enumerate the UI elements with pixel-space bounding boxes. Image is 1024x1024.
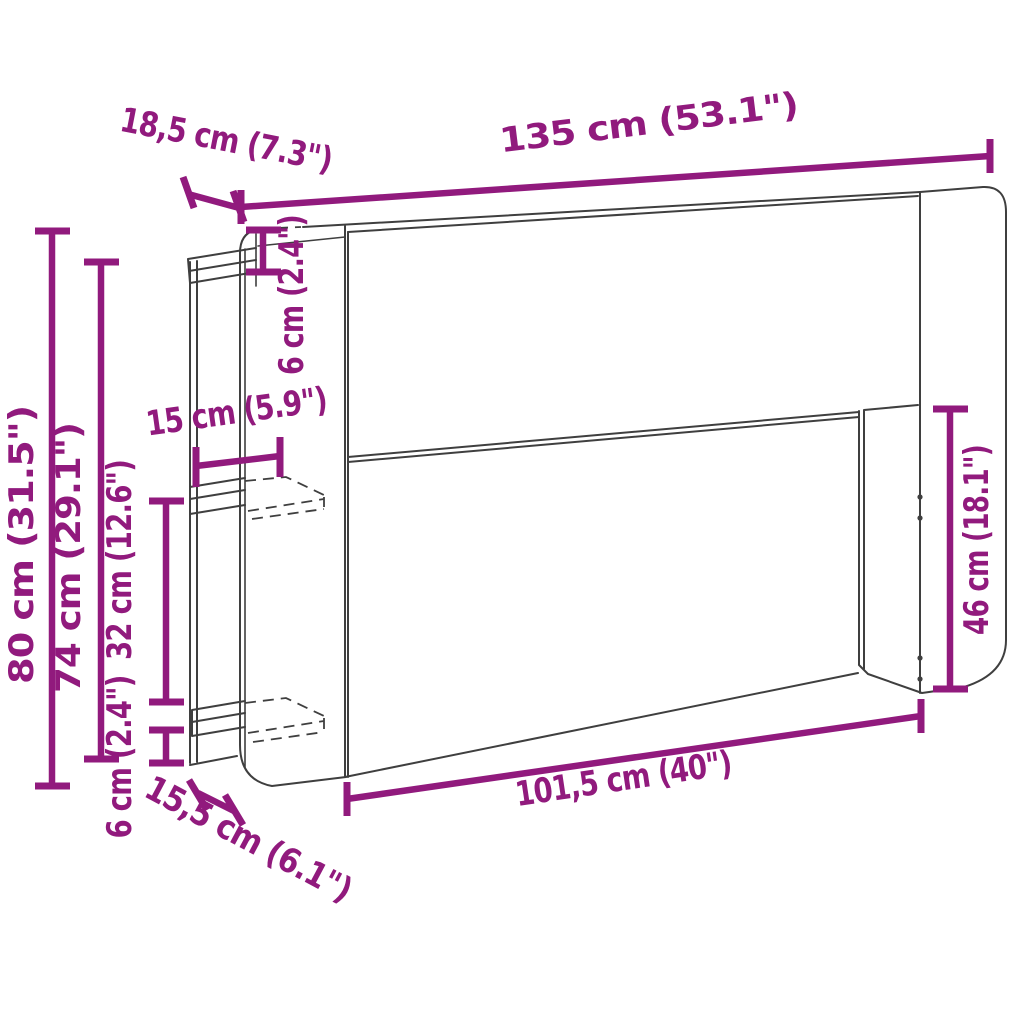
dim-overall-height-label: 80 cm (31.5")	[2, 406, 42, 684]
dimension-line	[196, 456, 280, 466]
screw-dot	[917, 494, 922, 499]
screw-dot	[917, 676, 922, 681]
middle-shelf-hidden-outline	[245, 477, 324, 519]
bottom-shelf	[192, 701, 245, 736]
dim-shelf-depth: 15 cm (5.9")	[144, 380, 330, 487]
dim-shelf-spacing-label: 32 cm (12.6")	[100, 460, 140, 660]
dim-bottom-depth-label: 15,5 cm (6.1")	[138, 768, 358, 910]
dim-top-thickness-label: 6 cm (2.4")	[272, 215, 312, 375]
dim-top-depth-label: 18,5 cm (7.3")	[117, 100, 336, 180]
dim-overall-width: 135 cm (53.1")	[241, 85, 990, 224]
dim-bottom-depth: 15,5 cm (6.1")	[138, 768, 358, 910]
dim-inner-width-label: 101,5 cm (40")	[513, 743, 735, 815]
headboard-front-panel	[345, 226, 859, 777]
headboard-dimension-diagram: 135 cm (53.1") 18,5 cm (7.3") 6 cm (2.4"…	[0, 0, 1024, 1024]
dim-shelf-thickness-label: 6 cm (2.4")	[100, 676, 140, 839]
screw-dot	[917, 515, 922, 520]
dim-overall-width-label: 135 cm (53.1")	[497, 85, 800, 161]
dimension-diagram-page: 135 cm (53.1") 18,5 cm (7.3") 6 cm (2.4"…	[0, 0, 1024, 1024]
dim-side-panel-height: 46 cm (18.1")	[933, 409, 997, 689]
screw-dot	[917, 655, 922, 660]
dim-side-panel-height-label: 46 cm (18.1")	[957, 445, 997, 635]
dim-inner-width: 101,5 cm (40")	[347, 699, 921, 816]
dim-front-rail-height-label: 74 cm (29.1")	[49, 423, 89, 693]
dim-shelf-depth-label: 15 cm (5.9")	[144, 380, 330, 445]
bottom-shelf-hidden-outline	[245, 698, 324, 742]
dim-shelf-spacing: 32 cm (12.6")	[100, 460, 184, 702]
